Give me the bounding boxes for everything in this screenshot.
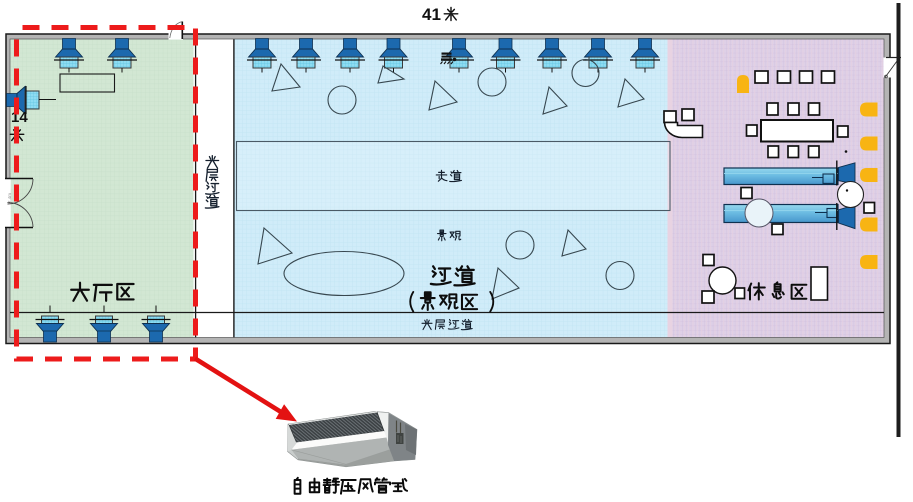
svg-text:14: 14 — [11, 109, 28, 126]
svg-text:41: 41 — [422, 5, 441, 24]
svg-text:2.4m: 2.4m — [7, 193, 12, 203]
